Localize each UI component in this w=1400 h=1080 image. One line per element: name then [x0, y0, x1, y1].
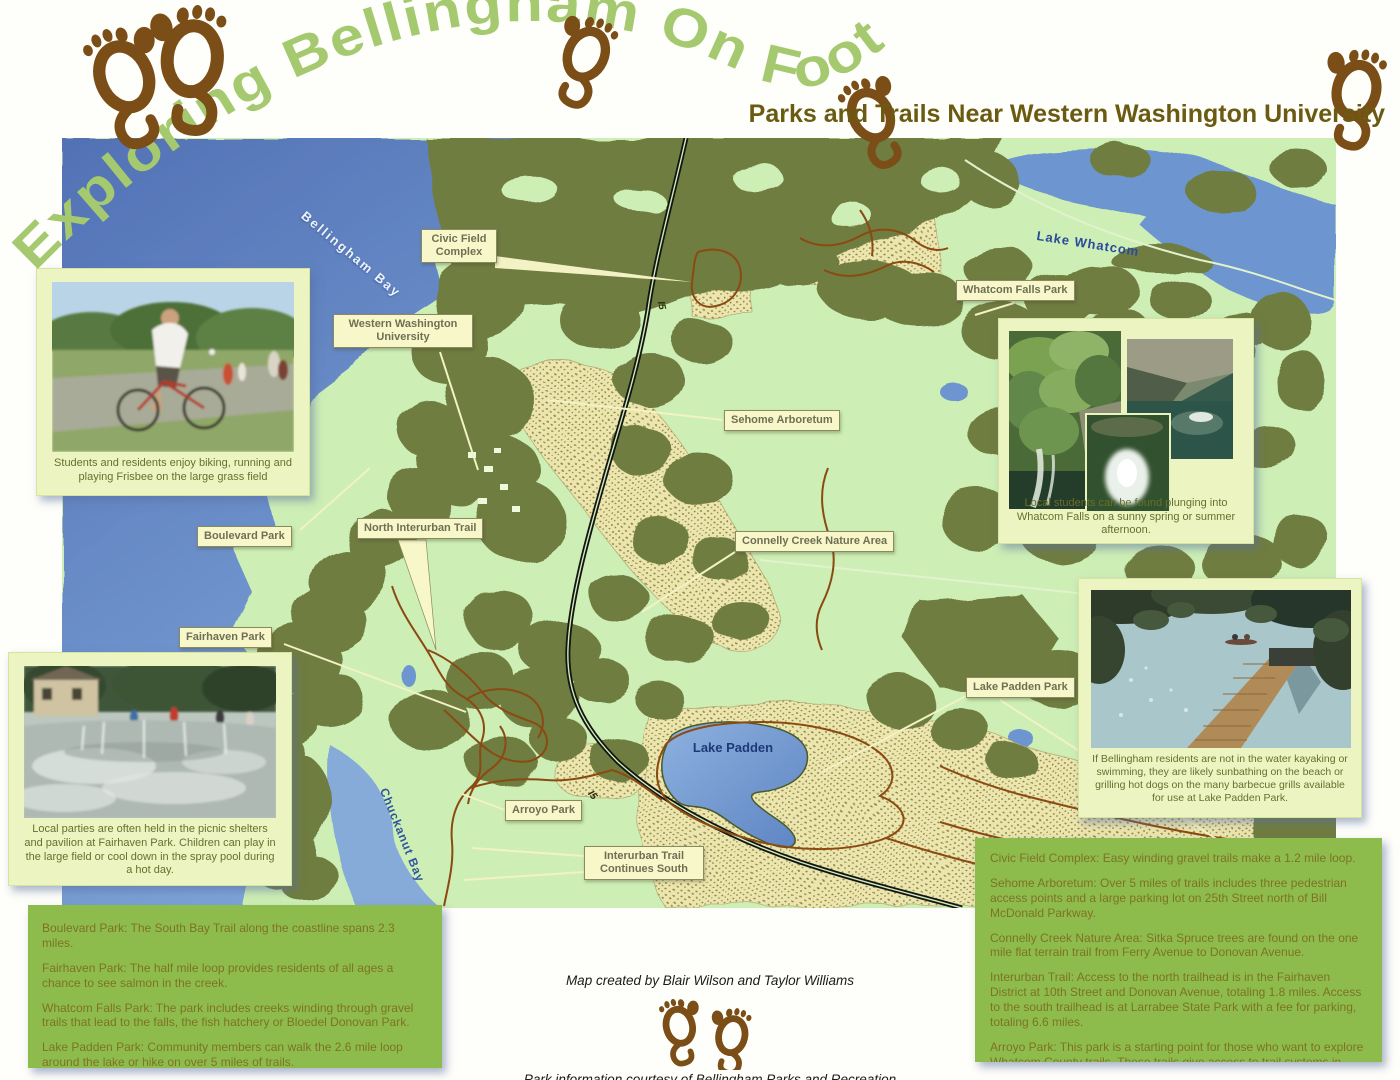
map-label-lake-padden-park: Lake Padden Park	[966, 677, 1075, 698]
credits-block: Map created by Blair Wilson and Taylor W…	[470, 973, 950, 1080]
photo-card-spray-pool: Local parties are often held in the picn…	[8, 652, 292, 886]
photo-caption-spray-pool: Local parties are often held in the picn…	[24, 823, 276, 878]
info-box-west-parks: Boulevard Park: The South Bay Trail alon…	[28, 905, 442, 1068]
info-paragraph: Boulevard Park: The South Bay Trail alon…	[42, 921, 428, 951]
water-label-lake-padden: Lake Padden	[692, 740, 774, 756]
credit-created-by: Map created by Blair Wilson and Taylor W…	[566, 973, 854, 988]
poster-page: Civic Field Complex Western Washington U…	[0, 0, 1400, 1080]
photo-card-biking: Students and residents enjoy biking, run…	[36, 268, 310, 496]
photo-caption-biking: Students and residents enjoy biking, run…	[52, 457, 294, 485]
footprint-icon	[657, 993, 713, 1066]
map-label-boulevard-park: Boulevard Park	[197, 526, 292, 547]
credit-courtesy: Park information courtesy of Bellingham …	[524, 1072, 896, 1080]
footprint-icon	[136, 0, 228, 133]
footprint-icon	[699, 1003, 753, 1070]
map-label-sehome-arboretum: Sehome Arboretum	[724, 410, 840, 431]
map-label-civic-field-complex: Civic Field Complex	[421, 229, 497, 263]
info-paragraph: Fairhaven Park: The half mile loop provi…	[42, 961, 428, 991]
info-paragraph: Arroyo Park: This park is a starting poi…	[990, 1040, 1367, 1062]
lake-padden-photo	[1091, 590, 1351, 748]
map-label-western-washington-university: Western Washington University	[333, 314, 473, 348]
map-label-arroyo-park: Arroyo Park	[505, 800, 582, 821]
info-box-east-parks: Civic Field Complex: Easy winding gravel…	[975, 838, 1382, 1062]
photo-card-whatcom-falls: Local students can be found plunging int…	[998, 318, 1254, 544]
footprint-icon	[1306, 40, 1390, 150]
info-paragraph: Sehome Arboretum: Over 5 miles of trails…	[990, 876, 1367, 921]
map-label-fairhaven-park: Fairhaven Park	[179, 627, 272, 648]
map-label-connelly-creek-nature-area: Connelly Creek Nature Area	[735, 531, 894, 552]
footprint-icon	[533, 4, 622, 110]
info-paragraph: Interurban Trail: Access to the north tr…	[990, 970, 1367, 1030]
map-label-whatcom-falls-park: Whatcom Falls Park	[956, 280, 1075, 301]
credits-footprints	[635, 992, 785, 1070]
biking-photo	[52, 282, 294, 452]
page-subtitle: Parks and Trails Near Western Washington…	[640, 100, 1385, 129]
map-label-north-interurban-trail: North Interurban Trail	[357, 518, 483, 539]
footprint-icon	[79, 12, 193, 150]
info-paragraph: Civic Field Complex: Easy winding gravel…	[990, 851, 1367, 866]
photo-caption-lake-padden: If Bellingham residents are not in the w…	[1091, 753, 1349, 806]
photo-card-lake-padden: If Bellingham residents are not in the w…	[1078, 578, 1362, 818]
map-label-interurban-trail-continues-south: Interurban Trail Continues South	[584, 846, 704, 880]
info-paragraph: Connelly Creek Nature Area: Sitka Spruce…	[990, 931, 1367, 961]
info-paragraph: Whatcom Falls Park: The park includes cr…	[42, 1001, 428, 1031]
spray-pool-photo	[24, 666, 276, 818]
info-paragraph: Lake Padden Park: Community members can …	[42, 1040, 428, 1068]
photo-caption-whatcom-falls: Local students can be found plunging int…	[1005, 497, 1247, 538]
